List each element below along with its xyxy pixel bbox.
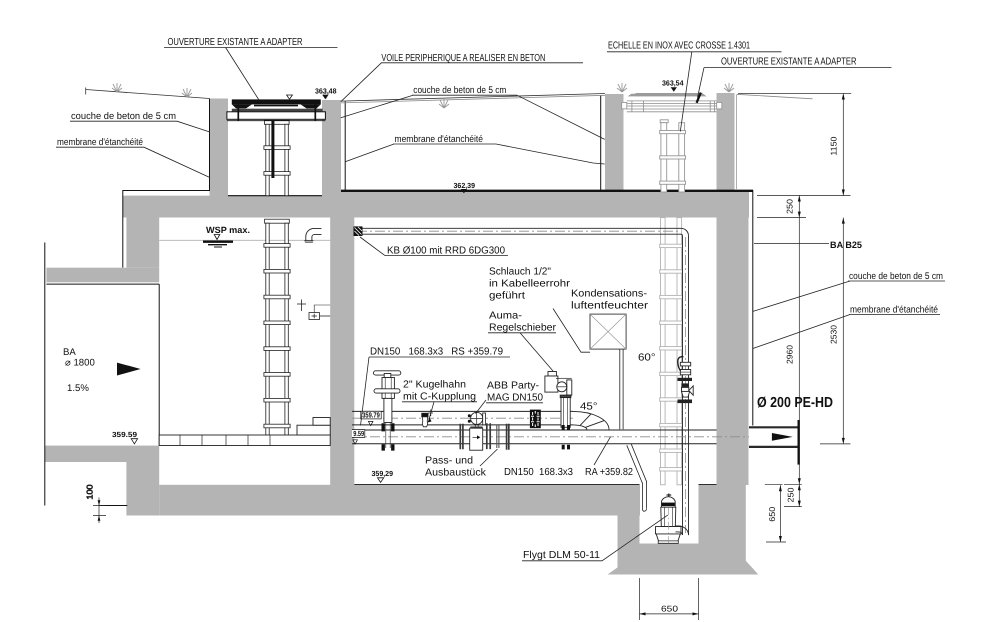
svg-text:RA +359.82: RA +359.82	[585, 467, 633, 478]
svg-text:Ausbaustück: Ausbaustück	[425, 468, 487, 479]
svg-text:in Kabelleerrohr: in Kabelleerrohr	[489, 279, 571, 290]
svg-text:VOILE PERIPHERIQUE A REALISER: VOILE PERIPHERIQUE A REALISER EN BETON	[381, 53, 545, 64]
svg-text:KB Ø100 mit RRD 6DG300: KB Ø100 mit RRD 6DG300	[387, 245, 505, 256]
svg-text:membrane d'étanchéité: membrane d'étanchéité	[850, 304, 938, 315]
svg-text:mit C-Kupplung: mit C-Kupplung	[403, 392, 476, 403]
svg-text:luftentfeuchter: luftentfeuchter	[571, 301, 649, 312]
svg-text:363,48: 363,48	[315, 86, 337, 95]
svg-text:60°: 60°	[638, 352, 656, 363]
svg-text:Kondensations-: Kondensations-	[571, 289, 647, 300]
svg-text:BA B25: BA B25	[830, 240, 862, 250]
svg-text:650: 650	[661, 604, 678, 614]
svg-text:359.79: 359.79	[362, 411, 380, 420]
svg-text:Flygt DLM 50-11: Flygt DLM 50-11	[523, 550, 600, 561]
svg-text:BA: BA	[63, 347, 76, 358]
svg-text:Regelschieber: Regelschieber	[489, 323, 557, 334]
svg-text:2530: 2530	[829, 325, 839, 344]
svg-text:OUVERTURE EXISTANTE A ADAPTER: OUVERTURE EXISTANTE A ADAPTER	[721, 56, 857, 67]
svg-text:1150: 1150	[829, 136, 839, 155]
svg-text:MAG DN150: MAG DN150	[487, 393, 543, 404]
svg-text:Auma-: Auma-	[489, 311, 522, 322]
svg-text:DN150 168.3x3 RS +359.79: DN150 168.3x3 RS +359.79	[370, 347, 503, 358]
svg-text:100: 100	[85, 484, 95, 499]
svg-text:couche de beton de 5 cm: couche de beton de 5 cm	[413, 85, 506, 96]
svg-text:1.5%: 1.5%	[67, 383, 89, 394]
svg-text:250: 250	[786, 487, 796, 502]
svg-text:2" Kugelhahn: 2" Kugelhahn	[403, 380, 466, 391]
svg-text:45°: 45°	[580, 402, 598, 413]
svg-text:Pass- und: Pass- und	[425, 456, 473, 467]
svg-text:ECHELLE EN INOX AVEC CROSSE 1.: ECHELLE EN INOX AVEC CROSSE 1.4301	[608, 41, 750, 52]
svg-text:Ø 200 PE-HD: Ø 200 PE-HD	[757, 395, 833, 411]
svg-text:couche de beton de 5 cm: couche de beton de 5 cm	[849, 271, 943, 282]
svg-text:membrane d'étanchéité: membrane d'étanchéité	[395, 134, 484, 145]
svg-text:359.59: 359.59	[112, 430, 137, 439]
svg-text:couche de beton de 5 cm: couche de beton de 5 cm	[71, 111, 176, 122]
svg-text:2960: 2960	[785, 345, 795, 364]
svg-text:650: 650	[767, 506, 777, 521]
svg-text:DN150 168.3x3: DN150 168.3x3	[504, 467, 573, 478]
svg-text:OUVERTURE EXISTANTE A ADAPTER: OUVERTURE EXISTANTE A ADAPTER	[168, 37, 303, 48]
svg-text:WSP max.: WSP max.	[206, 225, 250, 235]
svg-text:362,39: 362,39	[454, 181, 476, 190]
svg-text:359,29: 359,29	[372, 469, 394, 478]
svg-text:9.59: 9.59	[353, 429, 364, 438]
svg-text:250: 250	[785, 199, 795, 214]
svg-text:ABB Party-: ABB Party-	[487, 381, 539, 392]
svg-text:363,54: 363,54	[662, 79, 684, 88]
svg-text:membrane d'étanchéité: membrane d'étanchéité	[57, 137, 143, 148]
svg-text:geführt: geführt	[489, 291, 525, 302]
svg-text:⌀ 1800: ⌀ 1800	[65, 358, 95, 369]
svg-text:Schlauch 1/2": Schlauch 1/2"	[489, 267, 551, 278]
